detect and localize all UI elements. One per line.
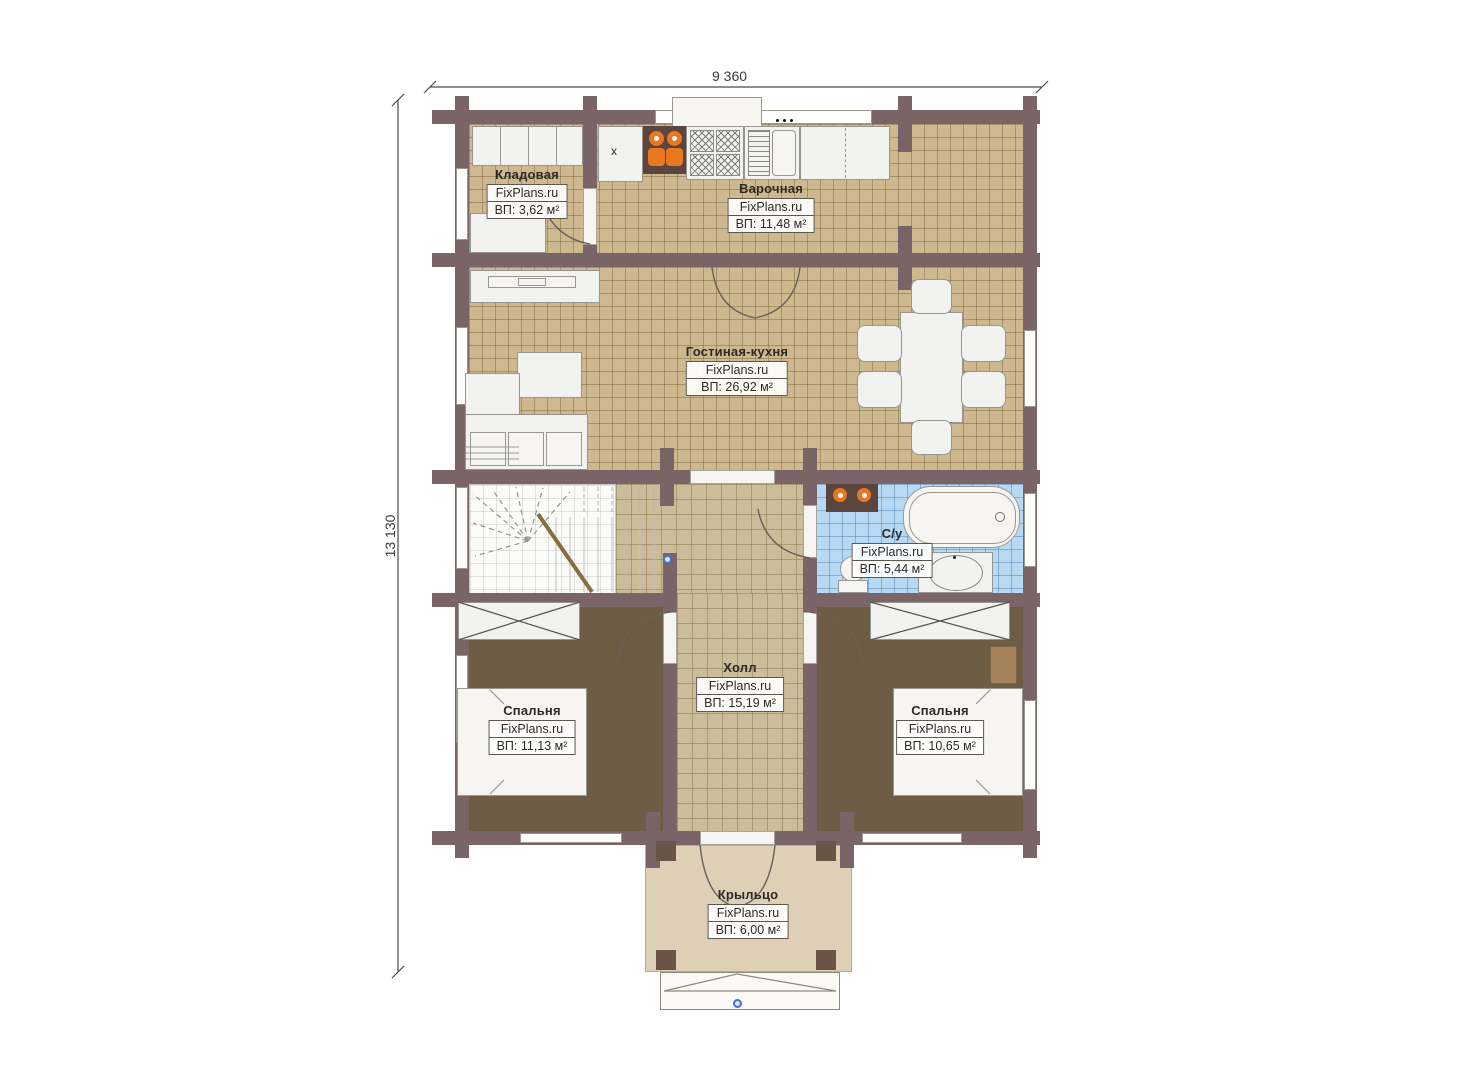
- coffee-table: [517, 352, 582, 398]
- log-stub-hall: [660, 448, 674, 506]
- porch-post: [816, 841, 836, 861]
- wardrobe-bedroom1: [458, 602, 580, 640]
- area-text: ВП: 11,48 м²: [728, 215, 815, 233]
- pantry-cabinet: [470, 213, 546, 253]
- passage-living-hall: [690, 470, 775, 484]
- heater-center-dot: [838, 493, 843, 498]
- log-stub-bottom-right: [840, 812, 854, 868]
- boiler-body: [666, 148, 683, 166]
- dining-chair: [911, 279, 952, 314]
- window-bath-right: [1024, 493, 1036, 567]
- room-name: Варочная: [728, 181, 815, 196]
- brand-text: FixPlans.ru: [852, 543, 933, 561]
- brand-text: FixPlans.ru: [696, 677, 784, 695]
- sink-drainer: [748, 130, 770, 176]
- dimension-height-label: 13 130: [382, 496, 398, 576]
- room-label-varochnaya: Варочная FixPlans.ru ВП: 11,48 м²: [728, 181, 815, 233]
- dining-chair: [857, 371, 902, 408]
- washbasin-faucet-dot: [953, 556, 956, 559]
- counter-divider: [845, 128, 846, 178]
- wall-kitchen-living: [432, 253, 1040, 267]
- wall-hall-right-lower: [803, 664, 817, 845]
- hob-burner-icon: [716, 154, 740, 176]
- floor-hall-upper: [616, 484, 803, 607]
- log-stub-kitchen: [898, 226, 912, 290]
- room-label-gostinaya: Гостиная-кухня FixPlans.ru ВП: 26,92 м²: [686, 344, 788, 396]
- pantry-shelves: [472, 126, 583, 166]
- sofa-cushion: [508, 432, 544, 466]
- area-text: ВП: 5,44 м²: [852, 560, 933, 578]
- room-name: Спальня: [489, 703, 576, 718]
- door-opening-bedroom1: [663, 612, 677, 664]
- burner-center-dot: [672, 136, 677, 141]
- wall-hall-left-lower: [663, 664, 677, 845]
- area-text: ВП: 6,00 м²: [708, 921, 789, 939]
- room-name: Кладовая: [487, 167, 568, 182]
- brand-text: FixPlans.ru: [708, 904, 789, 922]
- area-text: ВП: 15,19 м²: [696, 694, 784, 712]
- sofa-cushion: [546, 432, 582, 466]
- room-label-su: С/у FixPlans.ru ВП: 5,44 м²: [852, 526, 933, 578]
- toilet-tank: [838, 580, 868, 593]
- log-stub-top: [898, 96, 912, 152]
- cooker-hood: [672, 97, 762, 127]
- porch-post: [656, 950, 676, 970]
- boiler-body: [648, 148, 665, 166]
- room-name: Гостиная-кухня: [686, 344, 788, 359]
- room-name: Крыльцо: [708, 887, 789, 902]
- window-pantry-left: [456, 168, 468, 240]
- hob-burner-icon: [690, 154, 714, 176]
- kitchen-x-marker: x: [611, 144, 617, 158]
- window-living-right: [1024, 330, 1036, 407]
- door-opening-bedroom2: [803, 612, 817, 664]
- floor-hall-lower: [677, 593, 803, 845]
- hob-burner-icon: [690, 130, 714, 152]
- brand-text: FixPlans.ru: [686, 361, 788, 379]
- wall-pantry-upper: [583, 96, 597, 188]
- heater-center-dot: [862, 493, 867, 498]
- brand-text: FixPlans.ru: [728, 198, 815, 216]
- dining-chair: [911, 420, 952, 455]
- room-label-kryltso: Крыльцо FixPlans.ru ВП: 6,00 м²: [708, 887, 789, 939]
- sink-dot: [783, 119, 786, 122]
- porch-post: [816, 950, 836, 970]
- steps-node-marker: [733, 999, 742, 1008]
- window-stair-left: [456, 487, 468, 569]
- room-label-spalnya2: Спальня FixPlans.ru ВП: 10,65 м²: [896, 703, 984, 755]
- wall-living-hall-left: [432, 470, 690, 484]
- sink-dot: [790, 119, 793, 122]
- door-opening-pantry: [583, 188, 597, 245]
- wardrobe-bedroom2: [870, 602, 1010, 640]
- window-bedroom2-bottom: [862, 833, 962, 843]
- tv-mount: [518, 278, 546, 286]
- dresser-bedroom2: [990, 646, 1017, 684]
- porch-post: [656, 841, 676, 861]
- brand-text: FixPlans.ru: [896, 720, 984, 738]
- room-label-kladovaya: Кладовая FixPlans.ru ВП: 3,62 м²: [487, 167, 568, 219]
- wall-hall-right-upper: [803, 448, 817, 505]
- stair-node-marker: [663, 555, 672, 564]
- sink-basin: [772, 130, 796, 176]
- brand-text: FixPlans.ru: [487, 184, 568, 202]
- kitchen-counter-left: [598, 126, 643, 182]
- dining-chair: [961, 325, 1006, 362]
- area-text: ВП: 10,65 м²: [896, 737, 984, 755]
- floor-plan-canvas: x: [0, 0, 1474, 1080]
- dining-chair: [857, 325, 902, 362]
- room-name: С/у: [852, 526, 933, 541]
- window-bedroom1-bottom: [520, 833, 622, 843]
- area-text: ВП: 3,62 м²: [487, 201, 568, 219]
- door-opening-entrance: [700, 831, 775, 845]
- dining-chair: [961, 371, 1006, 408]
- burner-center-dot: [654, 136, 659, 141]
- sink-dot: [776, 119, 779, 122]
- wall-hall-right-middle: [803, 558, 817, 612]
- dining-table: [900, 312, 963, 423]
- window-bedroom2-right: [1024, 700, 1036, 790]
- brand-text: FixPlans.ru: [489, 720, 576, 738]
- porch-steps: [660, 972, 840, 1010]
- area-text: ВП: 11,13 м²: [489, 737, 576, 755]
- area-text: ВП: 26,92 м²: [686, 378, 788, 396]
- room-label-holl: Холл FixPlans.ru ВП: 15,19 м²: [696, 660, 784, 712]
- room-name: Спальня: [896, 703, 984, 718]
- wall-pantry-lower: [583, 245, 597, 267]
- room-label-spalnya1: Спальня FixPlans.ru ВП: 11,13 м²: [489, 703, 576, 755]
- dimension-width-label: 9 360: [712, 68, 747, 84]
- hob-burner-icon: [716, 130, 740, 152]
- floor-stairwell: [469, 484, 616, 607]
- bathtub-drain: [995, 512, 1005, 522]
- washbasin-bowl: [929, 555, 983, 591]
- sofa-cushion: [470, 432, 506, 466]
- door-opening-bath: [803, 505, 817, 558]
- room-name: Холл: [696, 660, 784, 675]
